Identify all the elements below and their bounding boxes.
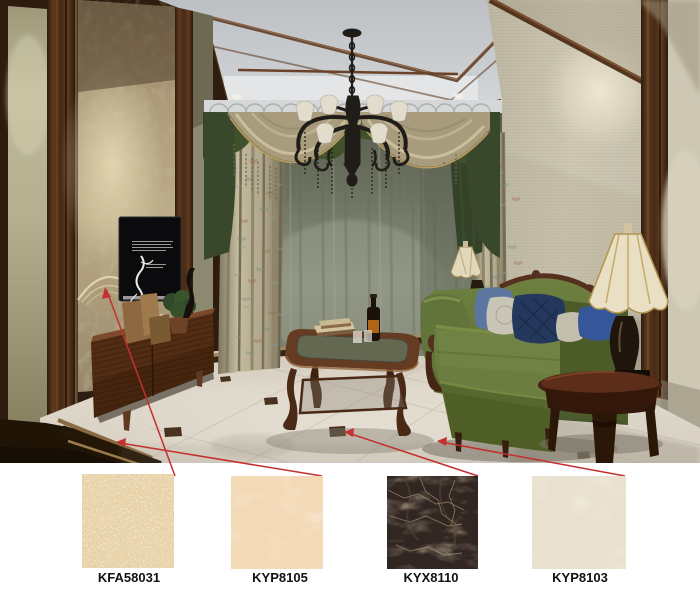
svg-text:KYP8105: KYP8105 [252,570,308,585]
svg-text:KFA58031: KFA58031 [98,570,160,585]
svg-text:KYX8110: KYX8110 [404,570,459,585]
svg-text:KYP8103: KYP8103 [552,570,608,585]
